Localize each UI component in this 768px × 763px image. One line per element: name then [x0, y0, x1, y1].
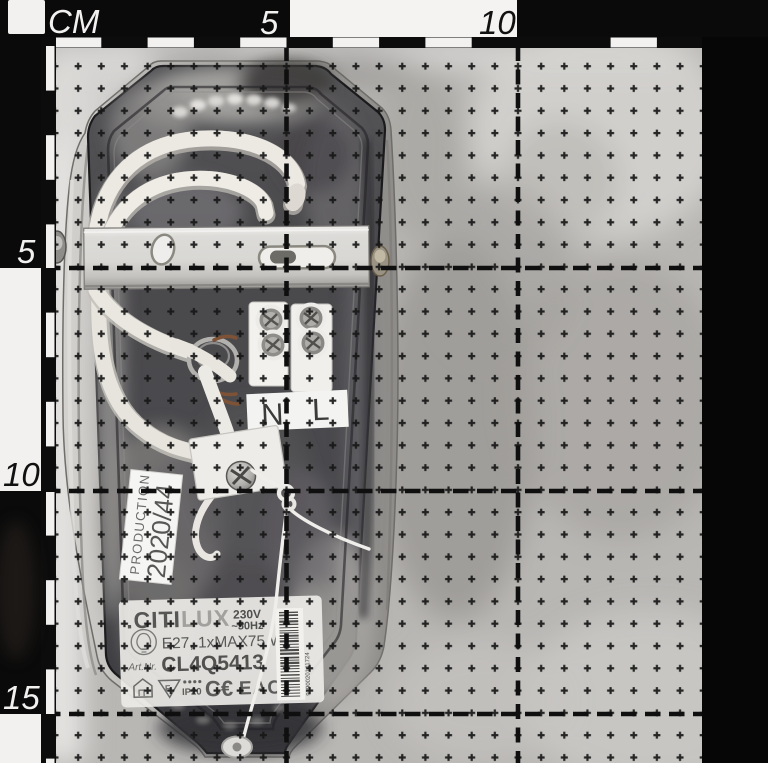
svg-text:5: 5 [260, 4, 279, 41]
svg-text:CM: CM [48, 3, 100, 40]
svg-text:10: 10 [3, 456, 40, 493]
svg-text:15: 15 [3, 679, 40, 716]
svg-text:5: 5 [17, 233, 36, 270]
svg-text:10: 10 [479, 4, 516, 41]
